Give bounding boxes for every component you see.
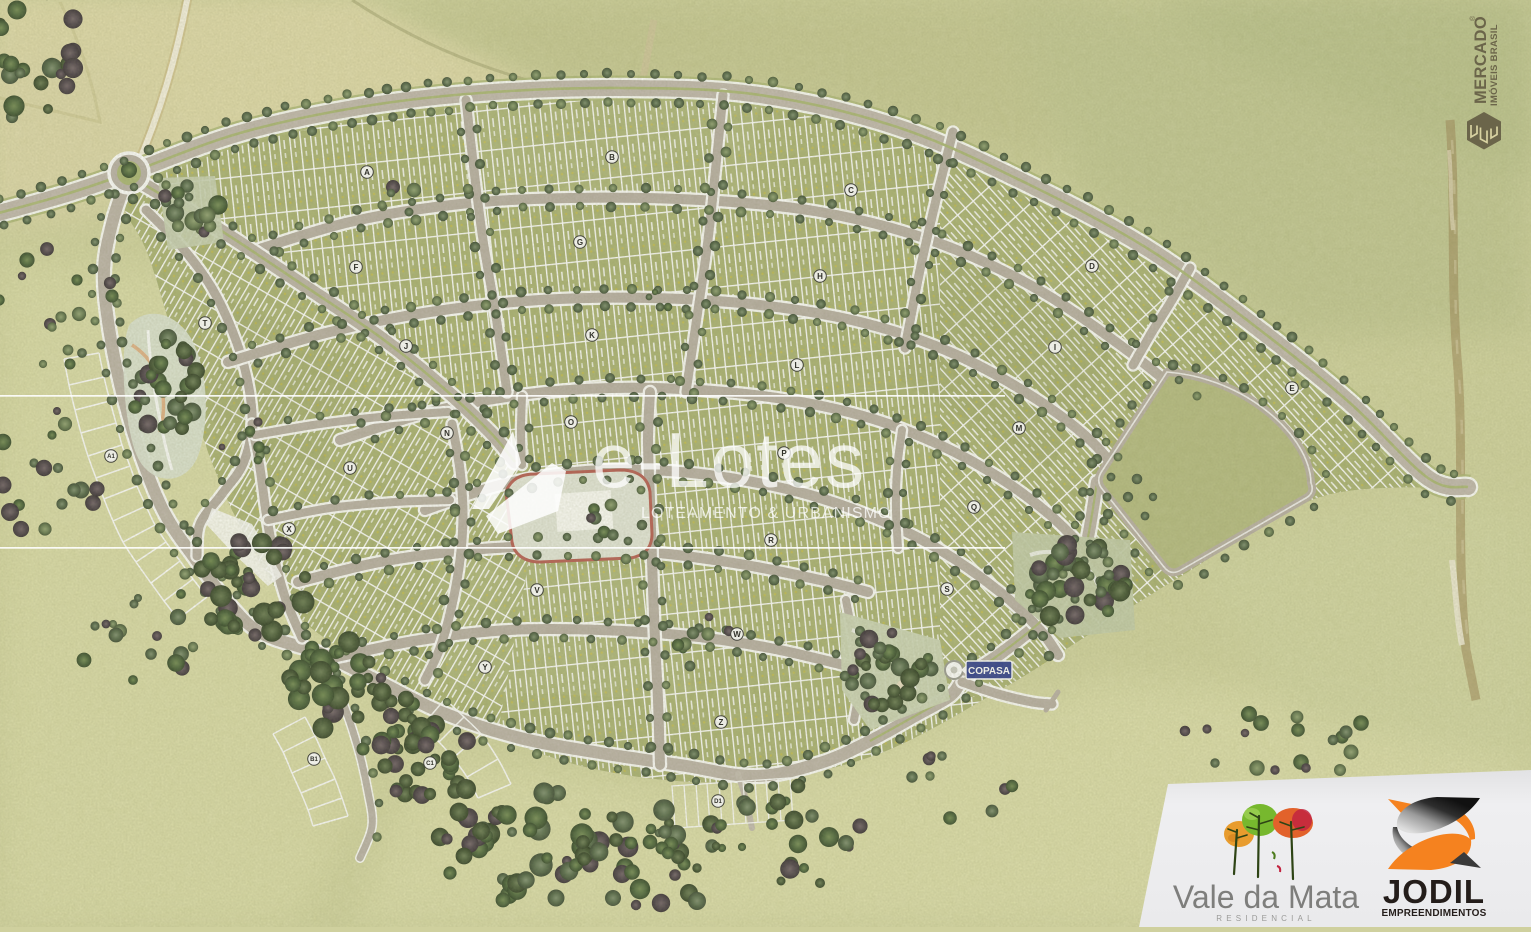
svg-text:JODIL: JODIL xyxy=(1383,873,1485,910)
svg-text:®: ® xyxy=(1469,15,1477,21)
svg-text:e-Lotes: e-Lotes xyxy=(592,416,866,504)
svg-text:IMÓVEIS BRASIL: IMÓVEIS BRASIL xyxy=(1488,24,1500,106)
svg-text:Vale da Mata: Vale da Mata xyxy=(1173,879,1359,915)
svg-text:MERCADO: MERCADO xyxy=(1472,16,1490,104)
svg-text:RESIDENCIAL: RESIDENCIAL xyxy=(1216,914,1316,923)
svg-text:EMPREENDIMENTOS: EMPREENDIMENTOS xyxy=(1381,908,1486,919)
svg-text:LOTEAMENTO & URBANISMO: LOTEAMENTO & URBANISMO xyxy=(641,505,892,522)
